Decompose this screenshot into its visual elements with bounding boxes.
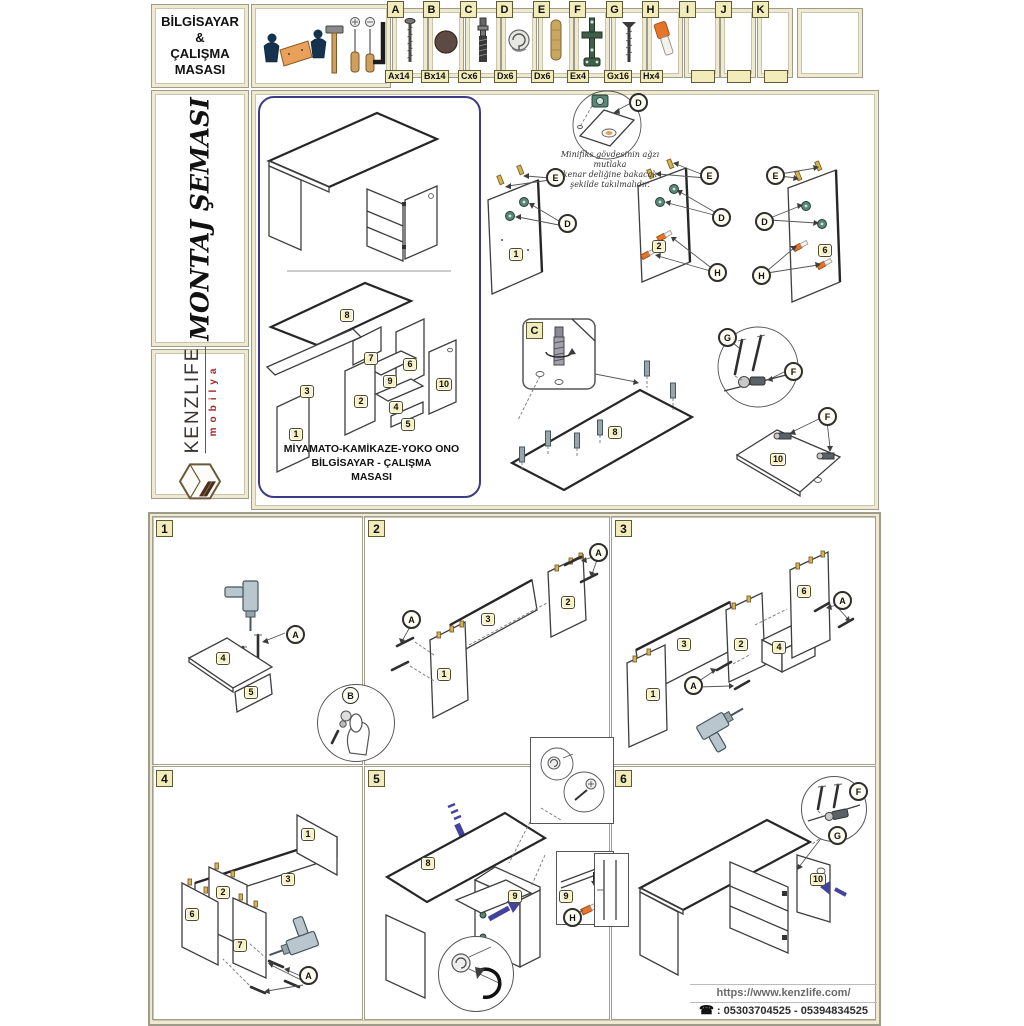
callout-letter-f: F	[784, 362, 803, 381]
step-number-6: 6	[615, 770, 632, 787]
part-tag-3: 3	[300, 385, 314, 398]
part-tag-2: 2	[652, 240, 666, 253]
allen-key-icon	[373, 22, 383, 62]
cam-bolt-icon	[468, 14, 498, 70]
callout-letter-f: F	[849, 782, 868, 801]
minifix-note-line: Minifiks gövdesinin ağzı mutlaka	[544, 150, 676, 170]
plastic-plug-icon	[650, 14, 680, 70]
cam-detail-drawing	[531, 738, 613, 823]
callout-letter-d: D	[629, 93, 648, 112]
screw-icon	[395, 14, 425, 70]
product-overview-panel: 8 7 6 9 3 2 10 4 5 1 MİYAMATO-KAMİKAZE-Y…	[258, 96, 481, 498]
phone-numbers-row: ☎: 05303704525 - 05394834525	[690, 1003, 877, 1017]
callout-letter-d: D	[712, 208, 731, 227]
part-tag-1: 1	[437, 668, 451, 681]
minifix-body-glyph	[592, 95, 608, 107]
callout-letter-a: A	[684, 676, 703, 695]
cam-detail-inset	[530, 737, 614, 824]
hammer-icon	[326, 26, 343, 73]
part-tag-2: 2	[354, 395, 368, 408]
step-number-5: 5	[368, 770, 385, 787]
minifix-cam-icon	[504, 14, 534, 70]
tools-illustration-box	[251, 4, 391, 88]
hardware-count-empty	[727, 70, 751, 83]
part-tag-3: 3	[281, 873, 295, 886]
step-number-1: 1	[156, 520, 173, 537]
brand-logo-box: KENZLIFE mobilya	[151, 349, 249, 499]
brand-name: KENZLIFE	[182, 347, 206, 454]
hardware-letter: I	[679, 1, 696, 18]
product-title-box: BİLGİSAYAR & ÇALIŞMA MASASI	[151, 4, 249, 88]
callout-letter-e: E	[546, 168, 565, 187]
hardware-count: Bx14	[421, 70, 449, 83]
part-tag-6: 6	[185, 908, 199, 921]
drill-icon	[225, 581, 258, 631]
part-tag-3: 3	[677, 638, 691, 651]
part-tag-1: 1	[646, 688, 660, 701]
part-tag-2: 2	[734, 638, 748, 651]
part-tag-8: 8	[608, 426, 622, 439]
callout-letter-h: H	[708, 263, 727, 282]
hardware-box-e: E Dx6	[538, 8, 574, 78]
hinge-screw-icon	[614, 14, 644, 70]
callout-letter-b: B	[342, 687, 359, 704]
hardware-letter: E	[533, 1, 550, 18]
part-tag-4: 4	[216, 652, 230, 665]
product-caption-line: MASASI	[268, 470, 475, 484]
callout-letter-a: A	[286, 625, 305, 644]
part-tag-6: 6	[797, 585, 811, 598]
montaj-semasi-title: MONTAJ ŞEMASI	[186, 97, 215, 340]
hardware-box-c: C Cx6	[465, 8, 501, 78]
hardware-letter: F	[569, 1, 586, 18]
callout-letter-d: D	[755, 212, 774, 231]
cover-cap-icon	[431, 14, 461, 70]
assembly-tools-illustration	[256, 10, 386, 82]
callout-letter-c: C	[526, 322, 543, 339]
phone-icon: ☎	[699, 1003, 714, 1017]
hardware-letter: B	[423, 1, 440, 18]
cam-turn-drawing	[439, 937, 513, 1011]
part-tag-9: 9	[383, 375, 397, 388]
part-tag-8: 8	[421, 857, 435, 870]
hardware-count: Cx6	[458, 70, 481, 83]
cam-turn-inset	[438, 936, 514, 1012]
hardware-box-d: D Dx6	[501, 8, 537, 78]
part-tag-1: 1	[289, 428, 303, 441]
hardware-count: Hx4	[640, 70, 663, 83]
part-tag-7: 7	[364, 352, 378, 365]
hinge-icon	[577, 14, 607, 70]
hardware-box-g: G Gx16	[611, 8, 647, 78]
part-tag-6: 6	[403, 358, 417, 371]
callout-letter-e: E	[700, 166, 719, 185]
callout-letter-d: D	[558, 214, 577, 233]
brand-subtitle: mobilya	[208, 347, 219, 454]
callout-letter-g: G	[718, 328, 737, 347]
part-tag-1: 1	[301, 828, 315, 841]
hardware-count: Gx16	[604, 70, 632, 83]
part-tag-2: 2	[216, 886, 230, 899]
montaj-semasi-box: MONTAJ ŞEMASI	[151, 90, 249, 347]
hardware-letter: G	[606, 1, 623, 18]
part-tag-9: 9	[559, 890, 573, 903]
callout-letter-e: E	[766, 166, 785, 185]
part-tag-2: 2	[561, 596, 575, 609]
product-caption: MİYAMATO-KAMİKAZE-YOKO ONO BİLGİSAYAR - …	[268, 442, 475, 484]
hardware-count: Ax14	[385, 70, 413, 83]
hardware-letter: K	[752, 1, 769, 18]
product-caption-line: MİYAMATO-KAMİKAZE-YOKO ONO	[268, 442, 475, 456]
brand-logo: KENZLIFE mobilya	[178, 347, 222, 502]
hardware-box-j: J	[720, 8, 756, 78]
phone-numbers: : 05303704525 - 05394834525	[717, 1005, 868, 1017]
part-tag-8: 8	[340, 309, 354, 322]
assembly-instruction-sheet: BİLGİSAYAR & ÇALIŞMA MASASI	[0, 0, 1024, 1024]
callout-letter-g: G	[828, 826, 847, 845]
part-tag-3: 3	[481, 613, 495, 626]
product-title-line: ÇALIŞMA	[170, 46, 229, 62]
minifix-note: Minifiks gövdesinin ağzı mutlaka kenar d…	[544, 150, 676, 190]
callout-letter-h: H	[752, 266, 771, 285]
part-tag-4: 4	[772, 641, 786, 654]
edge-detail-inset	[594, 853, 629, 927]
hardware-letter: D	[496, 1, 513, 18]
callout-letter-a: A	[589, 543, 608, 562]
hardware-box-h: H Hx4	[647, 8, 683, 78]
kenzlife-hexagon-logo-icon	[178, 461, 222, 501]
product-title-line: MASASI	[175, 62, 226, 78]
product-title-line: &	[195, 30, 204, 46]
step-number-2: 2	[368, 520, 385, 537]
step-number-3: 3	[615, 520, 632, 537]
hardware-box-k: K	[757, 8, 793, 78]
part-tag-6: 6	[818, 244, 832, 257]
fittings-annotation-drawing	[480, 90, 877, 508]
part-tag-10: 10	[436, 378, 452, 391]
product-caption-line: BİLGİSAYAR - ÇALIŞMA	[268, 456, 475, 470]
hardware-box-i: I	[684, 8, 720, 78]
workers-carrying-panel-icon	[264, 30, 326, 67]
edge-detail-drawing	[595, 854, 628, 926]
hardware-letter: A	[387, 1, 404, 18]
callout-letter-f: F	[818, 407, 837, 426]
product-title-line: BİLGİSAYAR	[161, 14, 239, 30]
callout-letter-a: A	[833, 591, 852, 610]
hardware-box-spare	[797, 8, 863, 78]
steps-line-art	[151, 515, 878, 1023]
drill-icon	[261, 914, 319, 962]
hardware-box-b: B Bx14	[428, 8, 464, 78]
wooden-dowel-icon	[541, 14, 571, 70]
drill-icon	[696, 702, 756, 756]
cap-press-inset: B	[317, 684, 395, 762]
hardware-letter: H	[642, 1, 659, 18]
hardware-letter: C	[460, 1, 477, 18]
hardware-count-empty	[764, 70, 788, 83]
hardware-count-empty	[691, 70, 715, 83]
hardware-box-f: F Ex4	[574, 8, 610, 78]
hardware-count: Dx6	[531, 70, 554, 83]
part-tag-7: 7	[233, 939, 247, 952]
website-url: https://www.kenzlife.com/	[690, 984, 877, 1003]
part-tag-5: 5	[244, 686, 258, 699]
step-number-4: 4	[156, 770, 173, 787]
part-tag-5: 5	[401, 418, 415, 431]
screwdriver-phillips-icon	[351, 18, 360, 73]
part-tag-9: 9	[508, 890, 522, 903]
hardware-count: Dx6	[494, 70, 517, 83]
callout-letter-h: H	[563, 908, 582, 927]
callout-letter-a: A	[402, 610, 421, 629]
part-tag-10: 10	[810, 873, 826, 886]
callout-letter-a: A	[299, 966, 318, 985]
part-tag-10: 10	[770, 453, 786, 466]
hardware-count: Ex4	[567, 70, 589, 83]
hardware-box-a: A Ax14	[392, 8, 428, 78]
hardware-letter: J	[715, 1, 732, 18]
part-tag-1: 1	[509, 248, 523, 261]
part-tag-4: 4	[389, 401, 403, 414]
